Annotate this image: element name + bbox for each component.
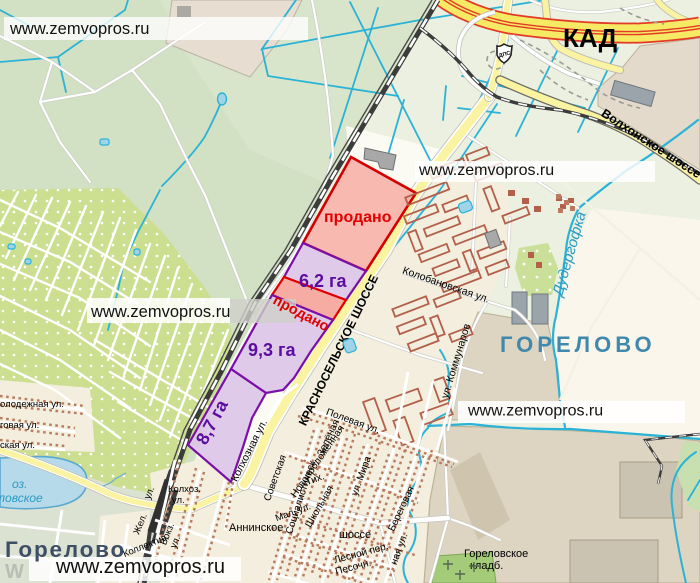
svg-text:КАД: КАД bbox=[563, 23, 618, 53]
svg-text:олодежная ул.: олодежная ул. bbox=[0, 399, 64, 410]
svg-text:продано: продано bbox=[324, 209, 392, 226]
svg-text:ГОРЕЛОВО: ГОРЕЛОВО bbox=[500, 332, 656, 357]
svg-text:9,3 га: 9,3 га bbox=[248, 340, 297, 360]
svg-text:6,2 га: 6,2 га bbox=[299, 271, 348, 291]
svg-text:еловское: еловское bbox=[0, 491, 43, 505]
svg-text:ская ул.: ская ул. bbox=[0, 440, 35, 451]
svg-text:шоссе: шоссе bbox=[339, 529, 371, 541]
svg-text:Аннинское: Аннинское bbox=[229, 522, 283, 534]
svg-text:ул.: ул. bbox=[172, 495, 185, 506]
svg-text:Колхоз.: Колхоз. bbox=[168, 484, 201, 495]
svg-text:www.zemvopros.ru: www.zemvopros.ru bbox=[467, 403, 603, 420]
svg-text:Гореловское: Гореловское bbox=[464, 548, 528, 560]
svg-text:W: W bbox=[5, 561, 24, 583]
svg-text:оз.: оз. bbox=[12, 477, 27, 491]
svg-text:www.zemvopros.ru: www.zemvopros.ru bbox=[418, 162, 554, 179]
svg-text:www.zemvopros.ru: www.zemvopros.ru bbox=[90, 303, 230, 321]
svg-text:говая ул.: говая ул. bbox=[0, 420, 39, 431]
svg-text:Горелово: Горелово bbox=[5, 537, 126, 562]
svg-text:www.zemvopros.ru: www.zemvopros.ru bbox=[9, 20, 149, 38]
